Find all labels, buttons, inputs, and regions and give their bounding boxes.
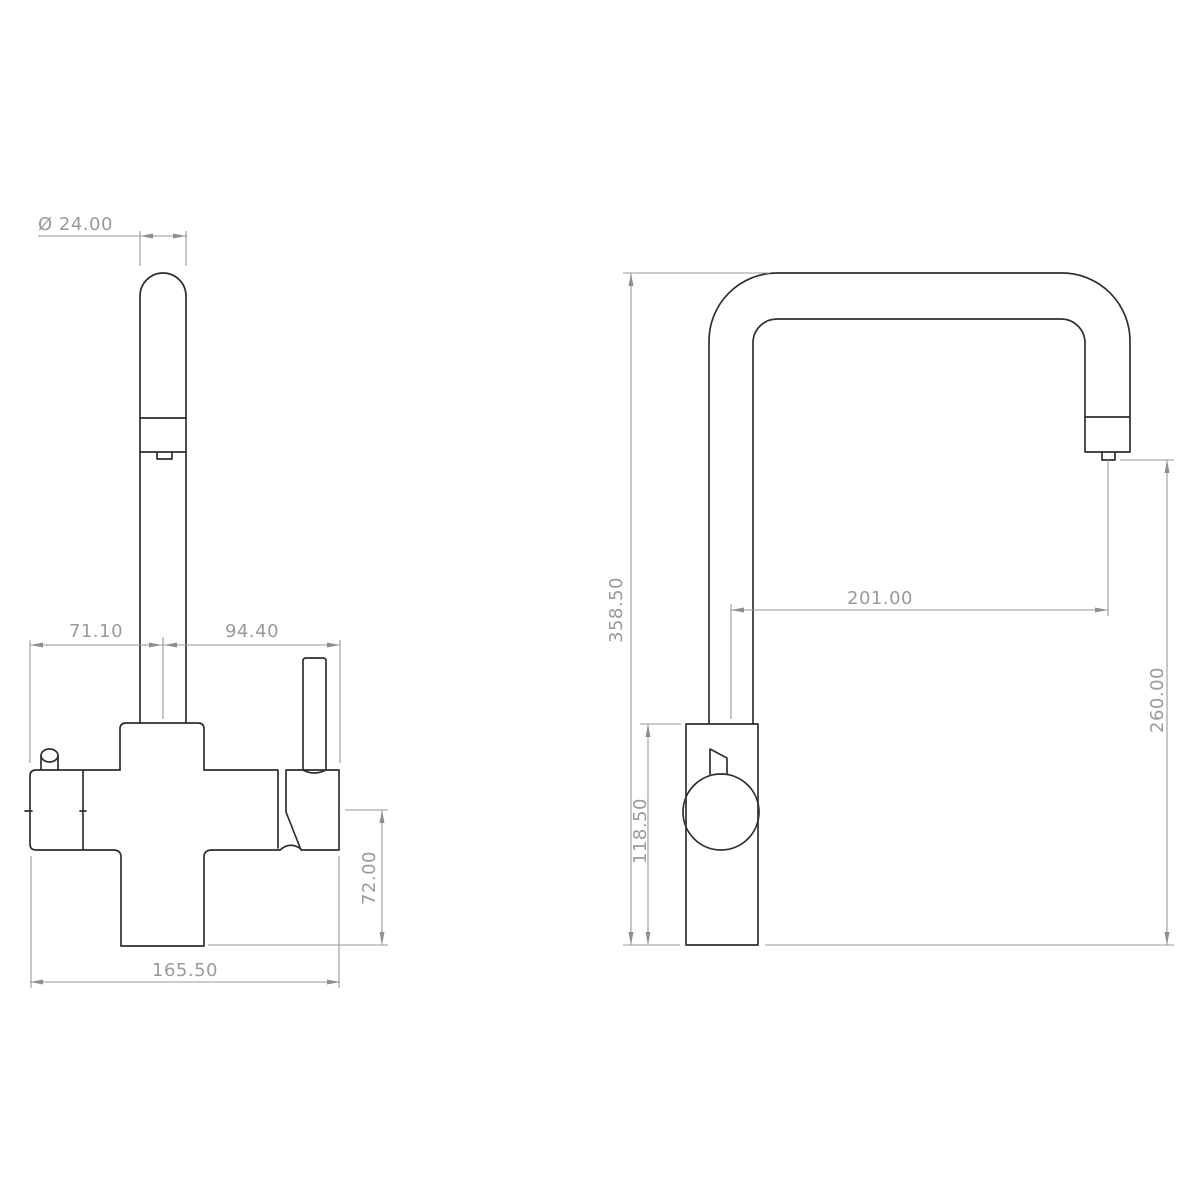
dim-arrow [1095, 608, 1108, 613]
side-lever-flag [710, 749, 727, 774]
side-spout-outer [709, 273, 1130, 724]
dim-handle-right-offset-label: 94.40 [225, 621, 279, 642]
dim-arrow [380, 932, 385, 945]
dim-arrow [646, 724, 651, 737]
dim-arrow [1165, 932, 1170, 945]
side-spout-end-block [1085, 417, 1130, 452]
dim-spout-left-offset-label: 71.10 [69, 621, 123, 642]
dim-body-height-label: 118.50 [630, 798, 651, 864]
dim-arrow [30, 980, 43, 985]
dim-overall-width-label: 165.50 [152, 960, 218, 981]
front-view: Ø 24.00 71.10 94.40 72.00 165.50 [25, 214, 388, 988]
technical-drawing-canvas: Ø 24.00 71.10 94.40 72.00 165.50 [0, 0, 1200, 1200]
dim-arrow [30, 643, 43, 648]
dim-arrow [380, 810, 385, 823]
side-view: 358.50 118.50 201.00 260.00 [606, 273, 1174, 945]
dim-arrow [646, 932, 651, 945]
dim-arrow [1165, 460, 1170, 473]
side-lever-knob [683, 774, 759, 850]
dim-arrow [164, 643, 177, 648]
dim-head-diameter-lines [38, 231, 187, 266]
side-spout-inner [753, 319, 1085, 724]
dim-head-diameter-label: Ø 24.00 [38, 214, 113, 235]
front-spout-nozzle-notch [157, 452, 172, 459]
dim-spout-reach-label: 201.00 [847, 588, 913, 609]
side-body [686, 724, 758, 945]
front-body-arc-detail [280, 845, 301, 850]
dim-arrow [149, 643, 162, 648]
dim-arrow [327, 643, 340, 648]
dim-arrow [629, 273, 634, 286]
faucet-dimension-drawing: Ø 24.00 71.10 94.40 72.00 165.50 [0, 0, 1200, 1200]
dim-outlet-height-label: 260.00 [1147, 667, 1168, 733]
dim-spout-reach-lines [731, 460, 1108, 719]
front-indicator-cap [41, 749, 58, 762]
dim-outlet-height-lines [765, 460, 1174, 945]
dim-offsets-lines [30, 637, 340, 763]
dim-arrow [327, 980, 340, 985]
front-lever-rod [303, 658, 326, 773]
dim-arrow [731, 608, 744, 613]
front-body-outline [30, 770, 280, 946]
dim-outlet-drop-label: 72.00 [359, 851, 380, 905]
dim-overall-height-label: 358.50 [606, 577, 627, 643]
side-dimensions: 358.50 118.50 201.00 260.00 [606, 273, 1174, 945]
dim-arrow [140, 234, 153, 239]
side-nozzle [1102, 452, 1115, 460]
front-mounting-boss [120, 723, 204, 770]
front-valve-block [286, 770, 339, 850]
front-indicator-sides [41, 756, 58, 770]
front-dimensions: Ø 24.00 71.10 94.40 72.00 165.50 [30, 214, 388, 988]
dim-arrow [629, 932, 634, 945]
dim-arrow [173, 234, 186, 239]
